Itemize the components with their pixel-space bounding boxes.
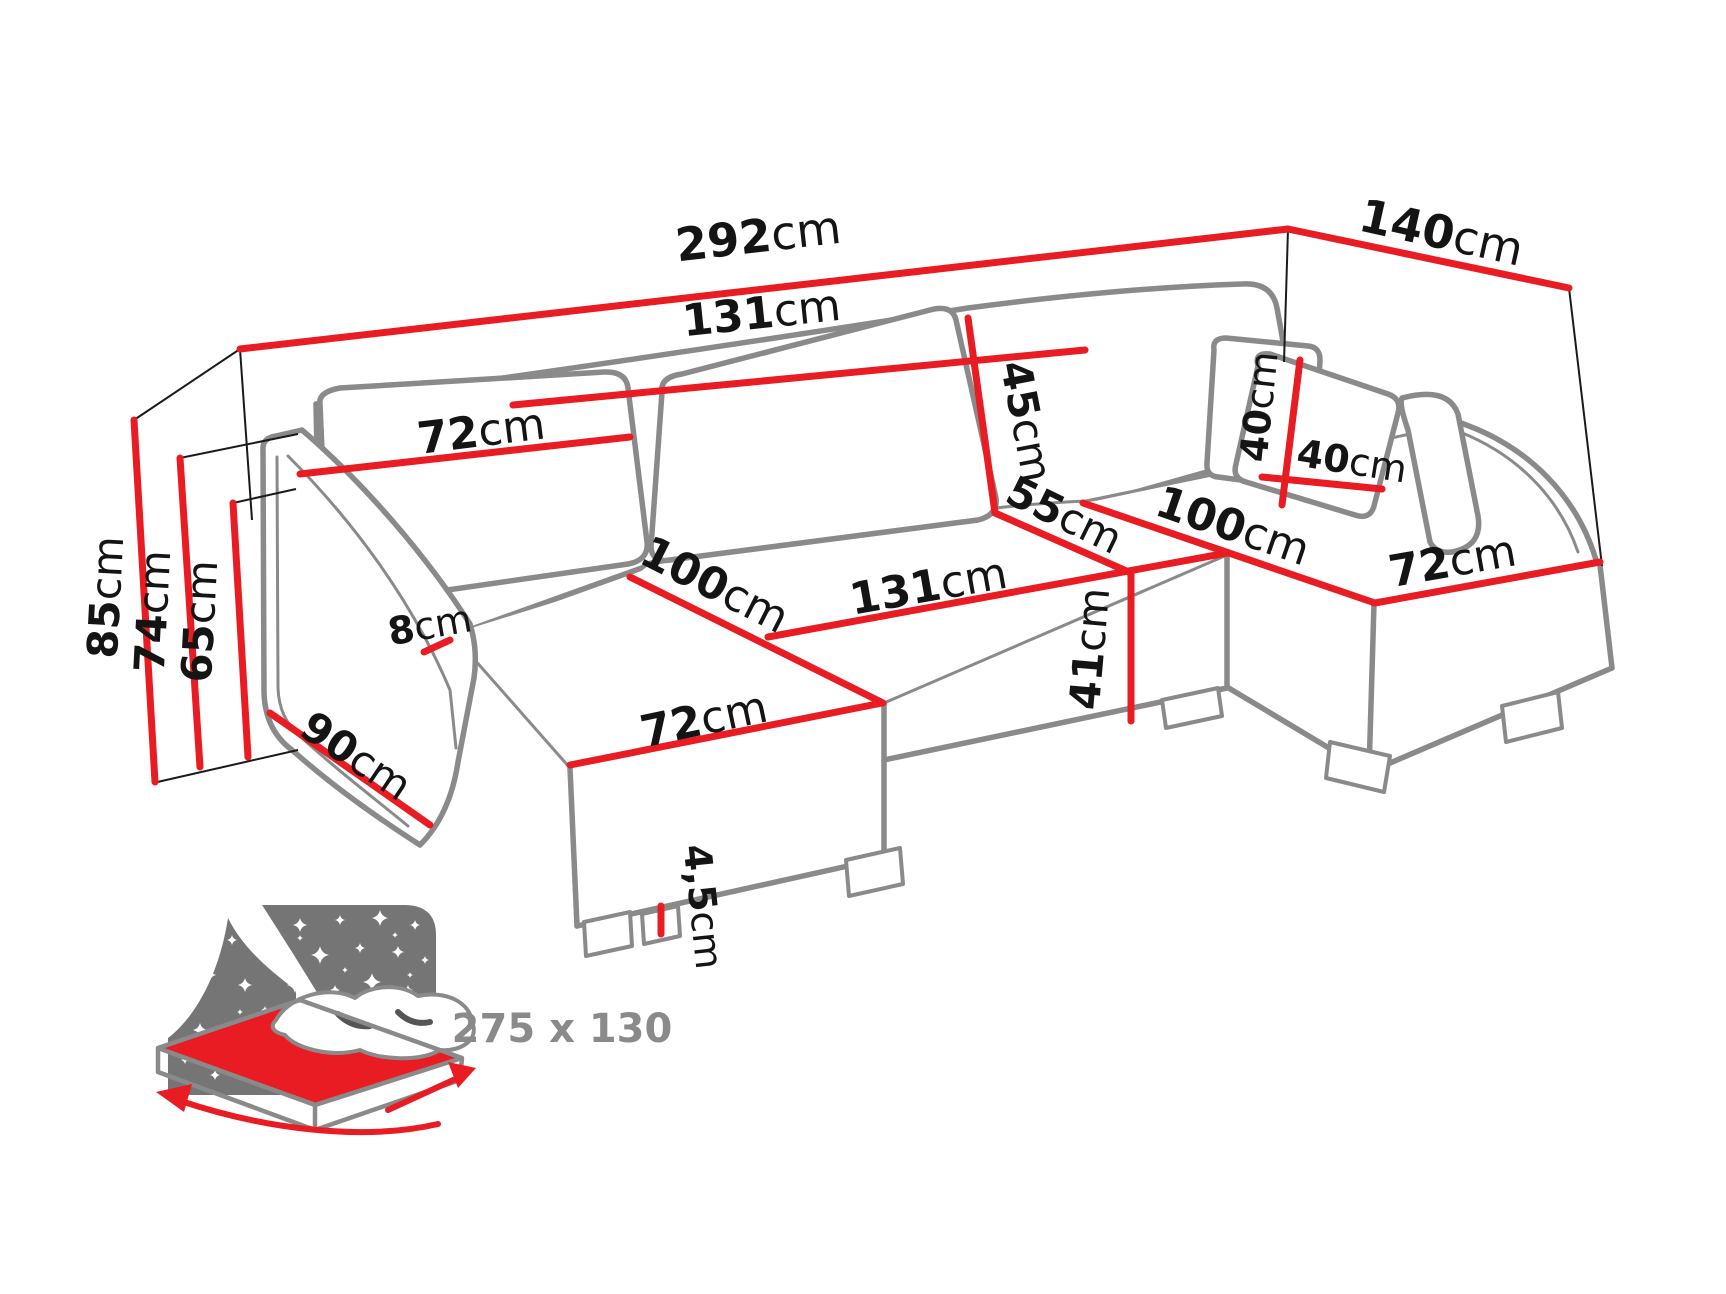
- arrow-length-head: [156, 1084, 192, 1112]
- dimension-label-height-backrest: 74cm: [125, 549, 180, 674]
- sofa-dimension-diagram: 292cm 140cm 131cm 72cm 45cm 55cm 131cm 4…: [0, 0, 1726, 1294]
- diagram-canvas: 292cm 140cm 131cm 72cm 45cm 55cm 131cm 4…: [0, 0, 1726, 1294]
- foot: [584, 912, 632, 956]
- dimension-label-height-total: 85cm: [78, 535, 133, 660]
- dimension-line-height-65: [233, 503, 248, 757]
- dimension-label-height-armrest: 65cm: [172, 559, 227, 684]
- star-icon: [271, 931, 279, 939]
- dimension-label-total-width: 292cm: [673, 200, 844, 272]
- star-icon: [280, 945, 290, 955]
- star-icon: [180, 995, 190, 1005]
- bed-size-label: 275 x 130: [452, 1006, 673, 1052]
- arrow-width: [388, 1076, 462, 1110]
- duvet: [273, 987, 474, 1058]
